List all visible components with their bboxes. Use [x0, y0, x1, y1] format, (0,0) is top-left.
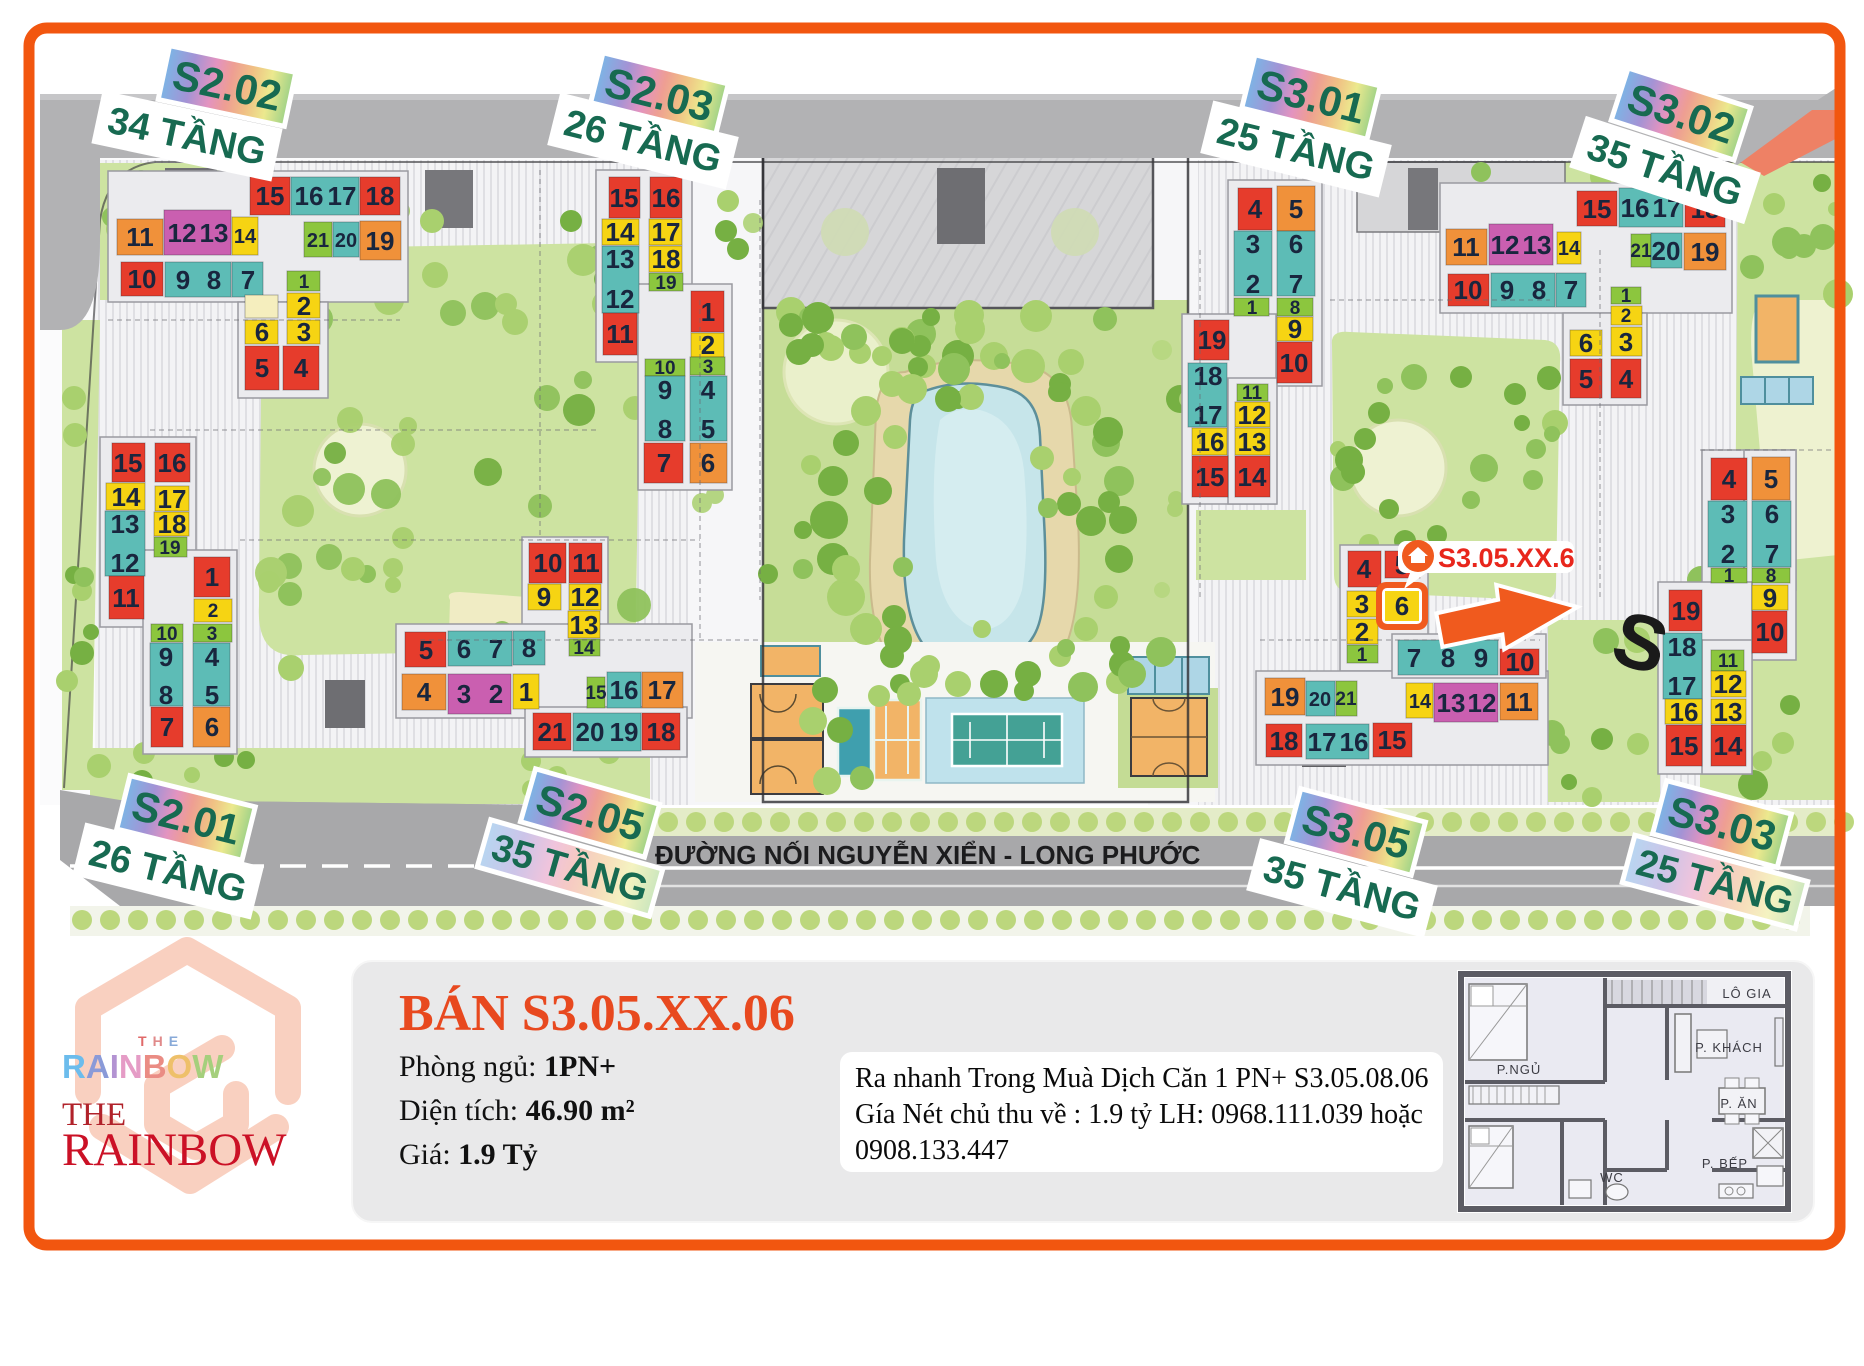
svg-text:14: 14 — [112, 482, 141, 512]
svg-text:18: 18 — [366, 181, 395, 211]
svg-text:16: 16 — [1340, 727, 1369, 757]
svg-text:7: 7 — [160, 712, 174, 742]
svg-text:7: 7 — [1289, 269, 1303, 299]
svg-text:5: 5 — [1289, 194, 1303, 224]
svg-text:12: 12 — [571, 582, 600, 612]
svg-text:20: 20 — [576, 717, 605, 747]
svg-text:P. KHÁCH: P. KHÁCH — [1695, 1040, 1763, 1055]
svg-text:14: 14 — [1238, 462, 1267, 492]
svg-text:14: 14 — [573, 638, 595, 659]
svg-text:6: 6 — [1579, 328, 1593, 358]
svg-text:2: 2 — [208, 601, 219, 622]
svg-text:LÔ GIA: LÔ GIA — [1722, 986, 1771, 1001]
svg-text:21: 21 — [1630, 241, 1652, 262]
svg-text:15: 15 — [610, 183, 639, 213]
svg-text:P. ĂN: P. ĂN — [1720, 1096, 1757, 1111]
svg-text:RAINBOW: RAINBOW — [62, 1048, 224, 1085]
svg-text:20: 20 — [1652, 236, 1681, 266]
svg-text:7: 7 — [1407, 643, 1421, 673]
svg-text:11: 11 — [112, 583, 140, 613]
svg-text:16: 16 — [652, 183, 681, 213]
svg-text:17: 17 — [1308, 727, 1337, 757]
svg-text:1: 1 — [205, 562, 219, 592]
svg-text:13: 13 — [1238, 427, 1267, 457]
svg-text:9: 9 — [1763, 583, 1777, 613]
svg-text:21: 21 — [307, 230, 329, 252]
svg-text:15: 15 — [1378, 725, 1407, 755]
svg-text:6: 6 — [1289, 229, 1303, 259]
svg-text:8: 8 — [159, 680, 173, 710]
svg-text:4: 4 — [1722, 464, 1737, 494]
svg-text:ĐƯỜNG NỐI NGUYỄN XIỂN - LONG P: ĐƯỜNG NỐI NGUYỄN XIỂN - LONG PHƯỚC — [655, 840, 1201, 870]
svg-text:11: 11 — [126, 222, 154, 252]
svg-text:19: 19 — [159, 538, 180, 559]
svg-text:9: 9 — [159, 642, 173, 672]
svg-text:16: 16 — [295, 181, 324, 211]
svg-text:1: 1 — [701, 297, 715, 327]
svg-text:14: 14 — [234, 226, 257, 248]
svg-text:18: 18 — [1668, 632, 1697, 662]
svg-text:14: 14 — [1714, 731, 1743, 761]
svg-text:18: 18 — [647, 717, 676, 747]
svg-text:19: 19 — [610, 717, 639, 747]
svg-text:7: 7 — [1564, 275, 1578, 305]
svg-text:6: 6 — [1395, 591, 1409, 621]
svg-text:10: 10 — [128, 264, 157, 294]
svg-text:2: 2 — [1355, 617, 1369, 647]
svg-text:13: 13 — [570, 610, 599, 640]
svg-text:12: 12 — [1468, 688, 1497, 718]
svg-text:7: 7 — [489, 634, 503, 664]
svg-text:2: 2 — [1621, 306, 1632, 327]
svg-text:6: 6 — [1765, 499, 1779, 529]
svg-text:12: 12 — [1491, 230, 1520, 260]
svg-text:Diện tích: 46.90 m²: Diện tích: 46.90 m² — [399, 1094, 635, 1127]
svg-text:13: 13 — [1523, 230, 1552, 260]
svg-text:18: 18 — [1194, 361, 1223, 391]
svg-text:14: 14 — [606, 217, 635, 247]
svg-text:21: 21 — [538, 717, 567, 747]
svg-text:4: 4 — [1619, 364, 1634, 394]
svg-text:3: 3 — [457, 679, 471, 709]
svg-text:10: 10 — [534, 548, 563, 578]
svg-text:14: 14 — [1409, 691, 1432, 713]
svg-text:19: 19 — [655, 273, 676, 294]
svg-text:5: 5 — [255, 353, 269, 383]
svg-text:13: 13 — [1437, 688, 1466, 718]
svg-text:7: 7 — [1765, 539, 1779, 569]
svg-text:7: 7 — [657, 448, 671, 478]
svg-text:18: 18 — [1270, 726, 1299, 756]
svg-text:1: 1 — [1357, 645, 1368, 666]
svg-text:15: 15 — [114, 448, 143, 478]
svg-text:20: 20 — [1309, 689, 1331, 711]
svg-text:S3.05.XX.6: S3.05.XX.6 — [1438, 543, 1575, 573]
svg-text:17: 17 — [1194, 400, 1223, 430]
svg-text:7: 7 — [241, 265, 255, 295]
svg-text:12: 12 — [168, 218, 197, 248]
svg-text:WC: WC — [1600, 1170, 1624, 1185]
svg-text:2: 2 — [1246, 269, 1260, 299]
svg-text:9: 9 — [1474, 643, 1488, 673]
svg-text:19: 19 — [366, 226, 395, 256]
svg-text:12: 12 — [606, 284, 635, 314]
svg-text:5: 5 — [701, 414, 715, 444]
svg-text:16: 16 — [1621, 193, 1650, 223]
svg-text:4: 4 — [1248, 194, 1263, 224]
svg-text:13: 13 — [606, 244, 635, 274]
svg-text:21: 21 — [1335, 689, 1357, 710]
svg-text:6: 6 — [255, 317, 269, 347]
svg-text:17: 17 — [652, 217, 681, 247]
svg-text:4: 4 — [294, 353, 309, 383]
svg-text:17: 17 — [648, 675, 677, 705]
svg-text:13: 13 — [111, 509, 140, 539]
svg-text:0908.133.447: 0908.133.447 — [855, 1135, 1009, 1166]
svg-text:3: 3 — [1355, 589, 1369, 619]
svg-text:BÁN S3.05.XX.06: BÁN S3.05.XX.06 — [399, 984, 795, 1042]
svg-text:Phòng ngủ: 1PN+: Phòng ngủ: 1PN+ — [399, 1050, 616, 1083]
svg-text:2: 2 — [489, 679, 503, 709]
svg-text:8: 8 — [207, 265, 221, 295]
svg-text:RAINBOW: RAINBOW — [62, 1124, 287, 1176]
svg-text:11: 11 — [1505, 687, 1533, 717]
svg-text:19: 19 — [1198, 325, 1227, 355]
svg-text:9: 9 — [176, 265, 190, 295]
svg-text:10: 10 — [1280, 348, 1309, 378]
svg-text:11: 11 — [572, 548, 600, 578]
svg-text:11: 11 — [1452, 232, 1480, 262]
svg-text:5: 5 — [1764, 464, 1778, 494]
svg-text:14: 14 — [1558, 238, 1581, 260]
svg-text:9: 9 — [1288, 314, 1302, 344]
svg-text:1: 1 — [1247, 298, 1258, 319]
svg-text:3: 3 — [1619, 327, 1633, 357]
svg-text:5: 5 — [1579, 364, 1593, 394]
svg-text:12: 12 — [111, 548, 140, 578]
svg-text:15: 15 — [1670, 731, 1699, 761]
svg-text:16: 16 — [1670, 697, 1699, 727]
svg-text:16: 16 — [610, 675, 639, 705]
svg-text:19: 19 — [1691, 237, 1720, 267]
svg-text:20: 20 — [335, 230, 357, 252]
svg-text:P.NGỦ: P.NGỦ — [1497, 1062, 1542, 1077]
svg-text:6: 6 — [701, 448, 715, 478]
svg-text:4: 4 — [701, 375, 716, 405]
svg-text:Gía Nét chủ thu về : 1.9 tỷ LH: Gía Nét chủ thu về : 1.9 tỷ LH: 0968.111… — [855, 1099, 1423, 1130]
svg-text:10: 10 — [1756, 617, 1785, 647]
svg-text:4: 4 — [205, 642, 220, 672]
svg-text:1: 1 — [1621, 286, 1632, 307]
svg-text:Giá: 1.9 Tỷ: Giá: 1.9 Tỷ — [399, 1138, 538, 1171]
svg-text:3: 3 — [1246, 229, 1260, 259]
svg-text:4: 4 — [1357, 554, 1372, 584]
svg-text:17: 17 — [328, 181, 357, 211]
svg-text:3: 3 — [297, 317, 311, 347]
svg-text:THE: THE — [138, 1033, 184, 1049]
svg-text:19: 19 — [1271, 682, 1300, 712]
svg-text:15: 15 — [585, 683, 607, 704]
svg-text:P. BẾP: P. BẾP — [1702, 1156, 1748, 1171]
svg-text:6: 6 — [457, 634, 471, 664]
svg-text:Ra nhanh Trong Muà Dịch Căn 1: Ra nhanh Trong Muà Dịch Căn 1 PN+ S3.05.… — [855, 1063, 1428, 1094]
svg-text:12: 12 — [1714, 669, 1743, 699]
svg-text:11: 11 — [606, 319, 634, 349]
svg-text:18: 18 — [652, 244, 681, 274]
svg-text:12: 12 — [1238, 400, 1267, 430]
svg-text:3: 3 — [1721, 499, 1735, 529]
svg-text:8: 8 — [658, 414, 672, 444]
svg-text:1: 1 — [299, 272, 310, 293]
svg-text:15: 15 — [1583, 194, 1612, 224]
svg-text:1: 1 — [1724, 566, 1735, 587]
svg-text:13: 13 — [1714, 697, 1743, 727]
svg-text:15: 15 — [256, 181, 285, 211]
svg-text:5: 5 — [205, 680, 219, 710]
svg-text:18: 18 — [158, 509, 187, 539]
svg-text:10: 10 — [1506, 647, 1535, 677]
svg-text:13: 13 — [200, 218, 229, 248]
svg-text:9: 9 — [537, 582, 551, 612]
svg-text:16: 16 — [158, 448, 187, 478]
svg-text:2: 2 — [701, 330, 715, 360]
svg-text:4: 4 — [417, 677, 432, 707]
svg-text:8: 8 — [522, 633, 536, 663]
svg-text:6: 6 — [205, 712, 219, 742]
svg-text:2: 2 — [1721, 539, 1735, 569]
svg-text:9: 9 — [658, 375, 672, 405]
svg-text:1: 1 — [519, 677, 533, 707]
